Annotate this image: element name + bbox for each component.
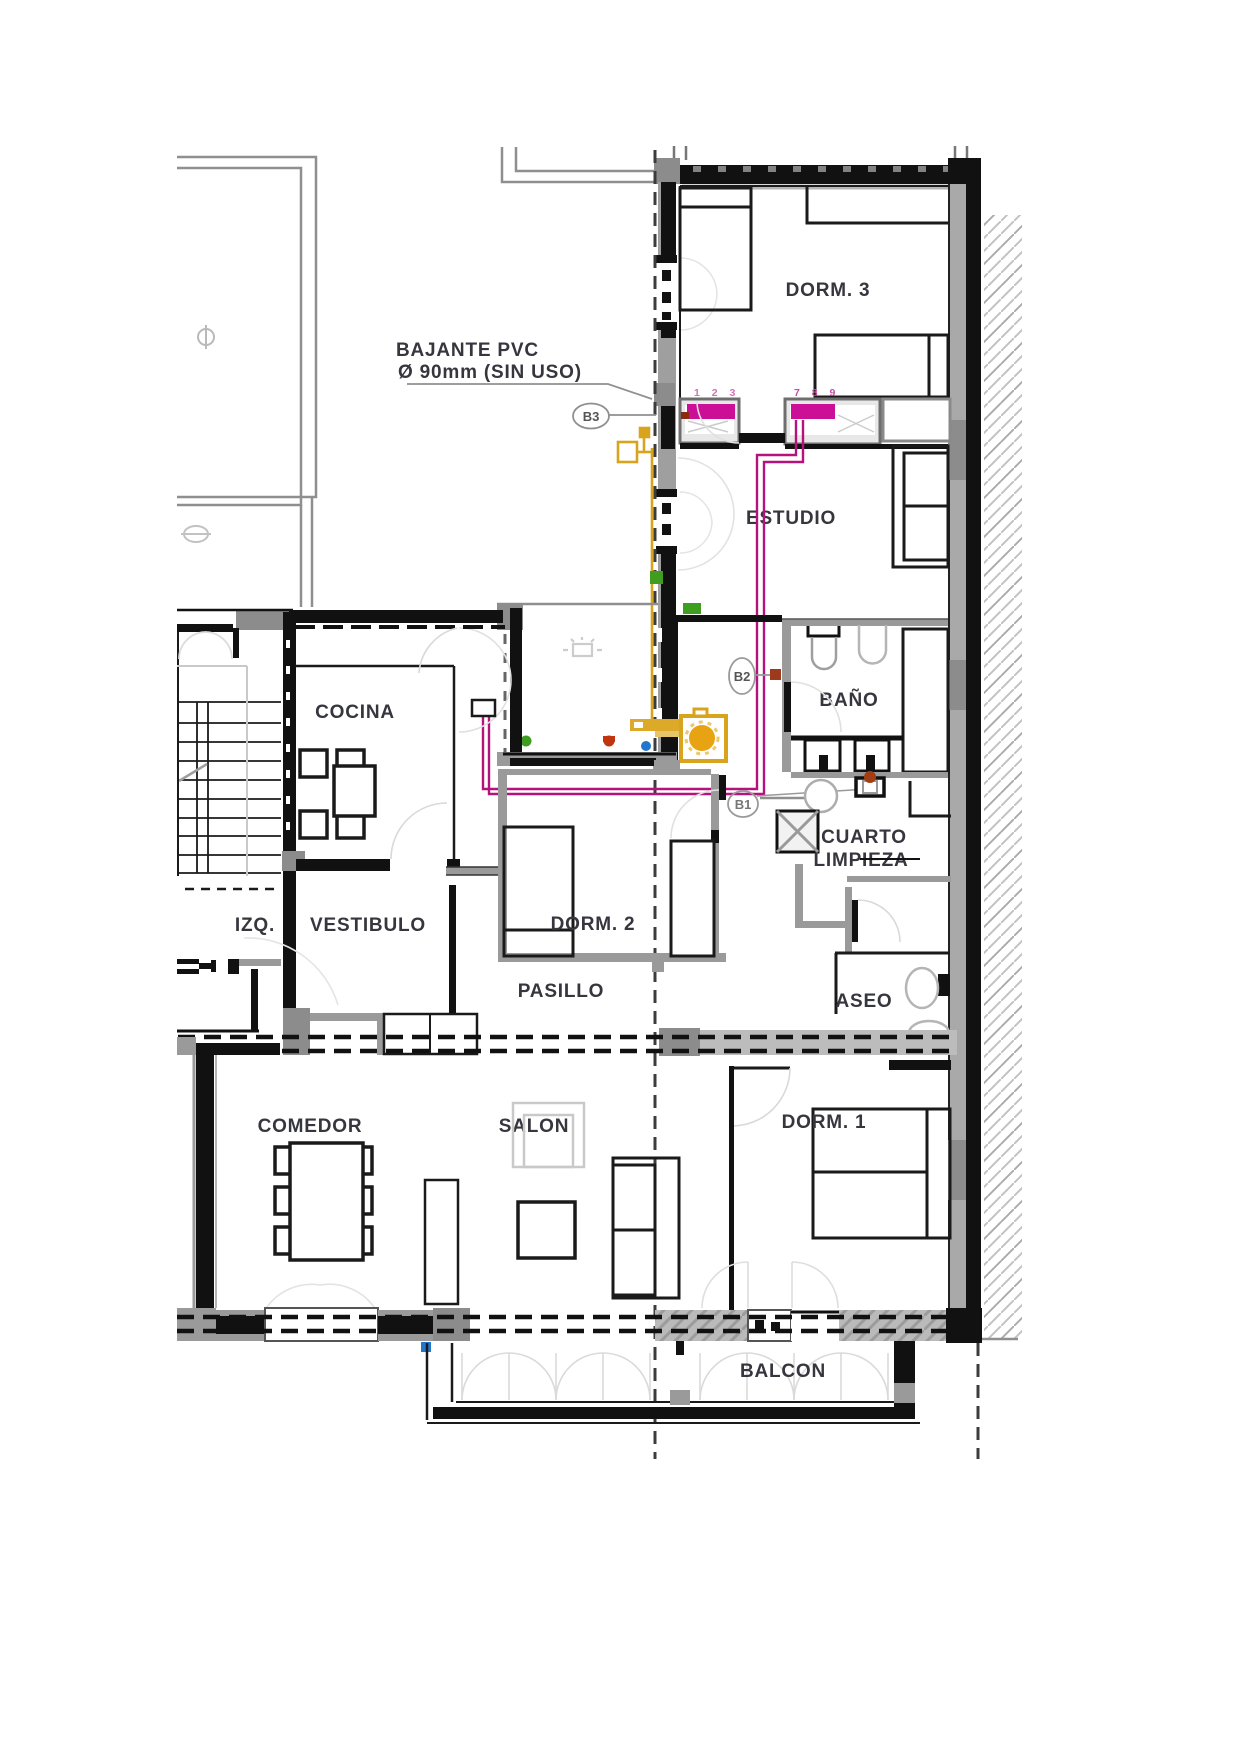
svg-text:7 8 9: 7 8 9 <box>794 387 840 399</box>
svg-text:ESTUDIO: ESTUDIO <box>746 508 836 529</box>
svg-text:DORM. 3: DORM. 3 <box>786 280 871 301</box>
svg-text:VESTIBULO: VESTIBULO <box>310 915 426 936</box>
svg-text:BAÑO: BAÑO <box>819 689 878 711</box>
svg-text:CUARTO: CUARTO <box>821 827 907 848</box>
svg-text:Ø 90mm (SIN USO): Ø 90mm (SIN USO) <box>398 362 582 383</box>
svg-text:LIMPIEZA: LIMPIEZA <box>813 850 908 871</box>
svg-text:B2: B2 <box>734 669 751 684</box>
svg-text:IZQ.: IZQ. <box>235 915 275 936</box>
svg-text:BAJANTE PVC: BAJANTE PVC <box>396 340 539 361</box>
svg-text:DORM. 2: DORM. 2 <box>551 914 636 935</box>
svg-text:PASILLO: PASILLO <box>518 981 605 1002</box>
svg-text:BALCON: BALCON <box>740 1361 826 1382</box>
svg-text:COCINA: COCINA <box>315 702 395 723</box>
svg-text:DORM. 1: DORM. 1 <box>782 1112 867 1133</box>
svg-text:ASEO: ASEO <box>835 991 892 1012</box>
svg-text:1 2 3: 1 2 3 <box>694 387 740 399</box>
svg-text:SALON: SALON <box>499 1116 570 1137</box>
svg-text:B1: B1 <box>735 797 752 812</box>
svg-text:B3: B3 <box>583 409 600 424</box>
svg-text:COMEDOR: COMEDOR <box>258 1116 363 1137</box>
